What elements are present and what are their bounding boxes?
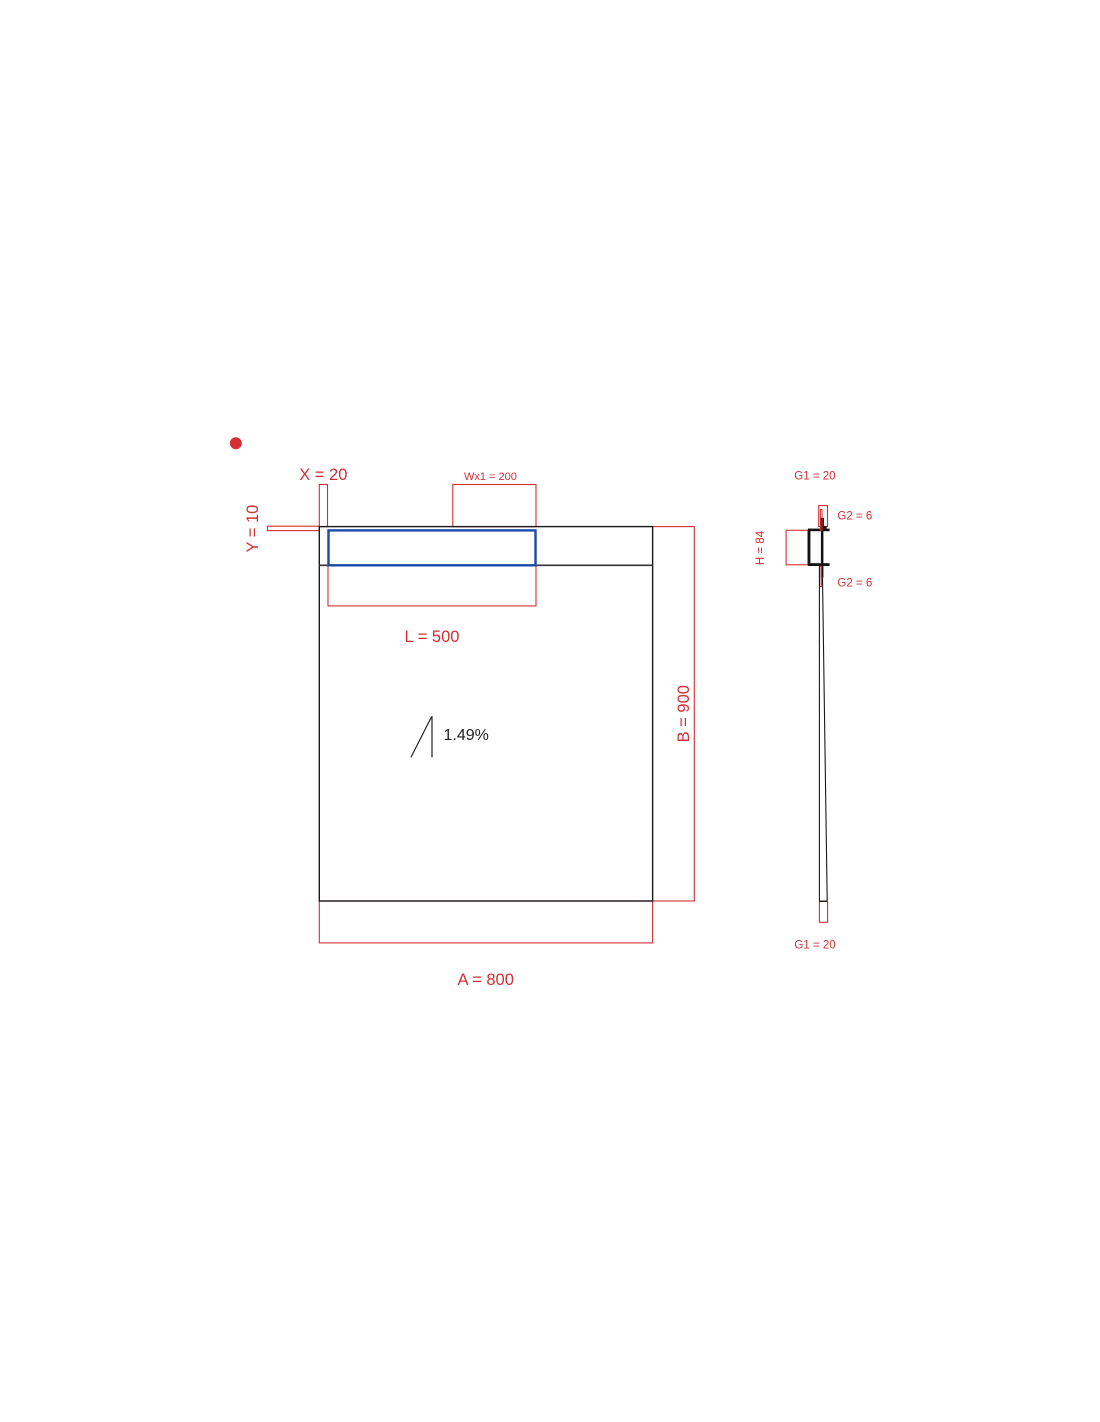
svg-text:G1 = 20: G1 = 20 [794,471,835,483]
svg-text:A = 800: A = 800 [457,971,513,989]
svg-text:G1 = 20: G1 = 20 [794,939,835,951]
svg-text:L = 500: L = 500 [405,628,460,646]
svg-text:1.49%: 1.49% [444,727,489,744]
svg-text:B = 900: B = 900 [675,685,693,742]
svg-text:H = 84: H = 84 [755,530,767,565]
svg-text:X = 20: X = 20 [299,466,347,484]
svg-text:Wx1 = 200: Wx1 = 200 [464,471,517,483]
svg-text:G2 = 6: G2 = 6 [837,578,872,590]
svg-text:Y = 10: Y = 10 [244,505,262,553]
svg-text:G2 = 6: G2 = 6 [837,511,872,523]
